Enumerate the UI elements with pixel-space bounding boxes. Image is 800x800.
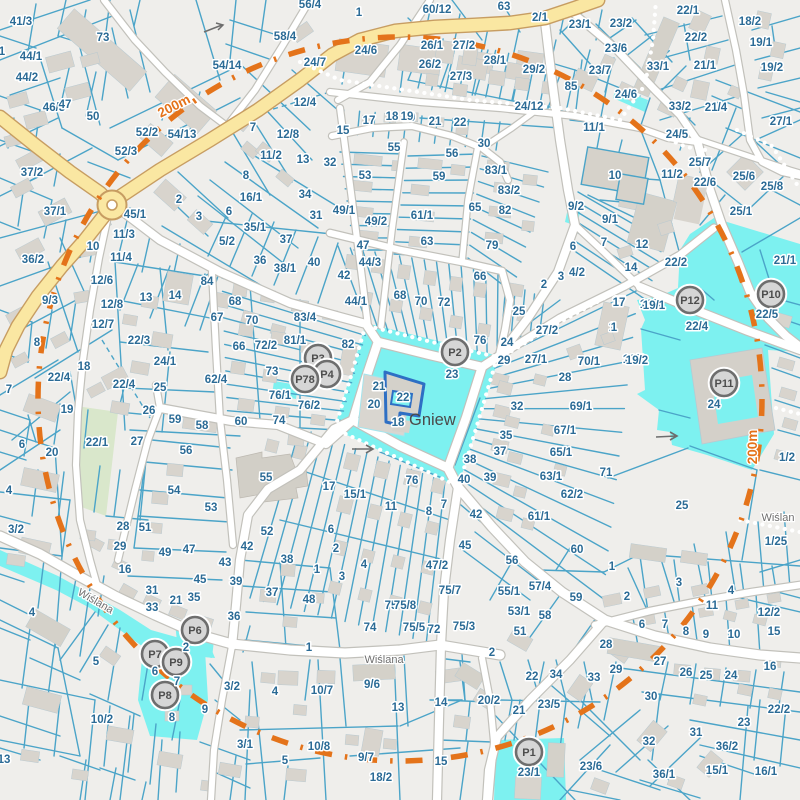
- svg-text:44/1: 44/1: [345, 296, 368, 308]
- svg-text:22/1: 22/1: [677, 5, 700, 17]
- svg-text:1: 1: [314, 564, 321, 576]
- svg-text:22: 22: [526, 671, 539, 683]
- svg-text:45: 45: [194, 574, 207, 586]
- svg-text:Wiślana: Wiślana: [364, 654, 404, 666]
- svg-text:24/6: 24/6: [355, 45, 377, 57]
- svg-text:22/4: 22/4: [113, 379, 136, 391]
- svg-text:75/8: 75/8: [394, 600, 417, 612]
- svg-text:36: 36: [254, 255, 267, 267]
- svg-text:17: 17: [323, 481, 336, 493]
- svg-text:14: 14: [625, 262, 638, 274]
- svg-text:8: 8: [34, 337, 41, 349]
- svg-text:58: 58: [539, 610, 552, 622]
- svg-text:15: 15: [768, 626, 781, 638]
- svg-text:32: 32: [511, 401, 524, 413]
- svg-text:32: 32: [324, 157, 337, 169]
- svg-text:22/2: 22/2: [768, 704, 790, 716]
- svg-text:49/1: 49/1: [333, 205, 356, 217]
- svg-text:3: 3: [676, 577, 682, 589]
- svg-text:16/1: 16/1: [240, 192, 263, 204]
- svg-text:4: 4: [6, 485, 13, 497]
- svg-text:24/5: 24/5: [666, 129, 689, 141]
- svg-text:7: 7: [662, 619, 668, 631]
- svg-text:3/2: 3/2: [8, 524, 24, 536]
- svg-text:52/2: 52/2: [136, 127, 158, 139]
- svg-text:23/7: 23/7: [589, 65, 611, 77]
- svg-text:66: 66: [233, 341, 246, 353]
- svg-text:27/3: 27/3: [450, 71, 472, 83]
- svg-text:15: 15: [435, 756, 448, 768]
- svg-text:24: 24: [501, 337, 514, 349]
- svg-text:56/4: 56/4: [299, 0, 322, 11]
- svg-text:44/1: 44/1: [20, 51, 43, 63]
- svg-text:38: 38: [281, 554, 294, 566]
- svg-text:45/1: 45/1: [124, 209, 147, 221]
- svg-text:58: 58: [196, 420, 209, 432]
- svg-text:29/2: 29/2: [523, 64, 545, 76]
- svg-text:19/1: 19/1: [643, 300, 666, 312]
- svg-text:54: 54: [168, 485, 181, 497]
- svg-text:P2: P2: [448, 347, 461, 359]
- svg-text:36/2: 36/2: [22, 254, 44, 266]
- svg-text:9/2: 9/2: [568, 201, 584, 213]
- svg-text:16: 16: [764, 661, 777, 673]
- svg-text:28/1: 28/1: [484, 55, 507, 67]
- svg-text:49: 49: [159, 547, 172, 559]
- svg-text:20/2: 20/2: [478, 695, 500, 707]
- svg-text:39: 39: [230, 576, 243, 588]
- svg-text:26/2: 26/2: [419, 59, 441, 71]
- svg-text:83/1: 83/1: [485, 165, 508, 177]
- svg-text:22/1: 22/1: [86, 437, 109, 449]
- svg-text:6: 6: [328, 524, 334, 536]
- svg-text:27/2: 27/2: [453, 40, 475, 52]
- svg-text:11: 11: [706, 600, 719, 612]
- svg-text:9/3: 9/3: [42, 295, 58, 307]
- svg-text:49/2: 49/2: [365, 216, 387, 228]
- svg-text:38: 38: [464, 454, 477, 466]
- svg-text:9/6: 9/6: [364, 679, 380, 691]
- svg-text:15/1: 15/1: [344, 489, 367, 501]
- svg-text:4: 4: [728, 585, 735, 597]
- svg-text:P11: P11: [715, 378, 734, 390]
- svg-text:82: 82: [499, 205, 512, 217]
- svg-text:21/1: 21/1: [694, 60, 717, 72]
- svg-text:27/1: 27/1: [525, 354, 548, 366]
- svg-text:44/2: 44/2: [16, 72, 38, 84]
- svg-text:31: 31: [690, 727, 703, 739]
- svg-text:11/2: 11/2: [661, 169, 683, 181]
- svg-text:15/1: 15/1: [706, 765, 729, 777]
- svg-text:11/1: 11/1: [583, 122, 605, 134]
- svg-text:84: 84: [201, 276, 214, 288]
- svg-text:11/4: 11/4: [110, 252, 132, 264]
- svg-text:83/2: 83/2: [498, 185, 520, 197]
- svg-text:45: 45: [459, 540, 472, 552]
- svg-text:10/8: 10/8: [308, 741, 331, 753]
- svg-text:2/1: 2/1: [532, 12, 549, 24]
- svg-text:25/1: 25/1: [730, 206, 753, 218]
- svg-text:12: 12: [636, 239, 649, 251]
- svg-text:37/2: 37/2: [21, 167, 43, 179]
- svg-text:60/12: 60/12: [423, 4, 452, 16]
- svg-text:59: 59: [570, 592, 583, 604]
- svg-text:1: 1: [0, 46, 6, 58]
- svg-text:4/2: 4/2: [569, 267, 585, 279]
- svg-text:42: 42: [470, 509, 483, 521]
- svg-text:13: 13: [140, 292, 153, 304]
- svg-text:2: 2: [624, 591, 630, 603]
- svg-text:18: 18: [392, 417, 405, 429]
- svg-text:18: 18: [386, 111, 399, 123]
- svg-text:12/8: 12/8: [277, 129, 300, 141]
- svg-text:8: 8: [243, 170, 250, 182]
- svg-text:11/2: 11/2: [260, 150, 282, 162]
- svg-text:14: 14: [435, 697, 448, 709]
- svg-text:32: 32: [643, 736, 656, 748]
- svg-text:82: 82: [342, 339, 355, 351]
- svg-text:10: 10: [609, 170, 622, 182]
- svg-text:5: 5: [93, 656, 100, 668]
- svg-text:9/7: 9/7: [358, 752, 374, 764]
- svg-text:22/3: 22/3: [128, 335, 150, 347]
- svg-text:25/8: 25/8: [761, 181, 784, 193]
- svg-text:2: 2: [541, 279, 547, 291]
- svg-text:6: 6: [570, 241, 576, 253]
- svg-text:27: 27: [131, 436, 144, 448]
- svg-text:9: 9: [703, 629, 709, 641]
- svg-text:23: 23: [738, 717, 751, 729]
- svg-text:P7: P7: [148, 649, 161, 661]
- svg-text:36/1: 36/1: [653, 769, 676, 781]
- svg-text:30: 30: [645, 691, 658, 703]
- svg-text:85: 85: [565, 81, 578, 93]
- svg-text:26: 26: [680, 667, 693, 679]
- svg-text:11/3: 11/3: [113, 229, 135, 241]
- svg-text:33/1: 33/1: [647, 61, 670, 73]
- svg-text:8: 8: [426, 506, 433, 518]
- svg-text:68: 68: [229, 296, 242, 308]
- svg-text:69/1: 69/1: [570, 401, 593, 413]
- svg-text:10: 10: [87, 241, 100, 253]
- svg-text:23: 23: [446, 369, 459, 381]
- svg-text:28: 28: [600, 639, 613, 651]
- svg-text:17: 17: [613, 297, 626, 309]
- svg-text:10: 10: [728, 629, 741, 641]
- svg-text:52: 52: [261, 526, 274, 538]
- svg-text:66: 66: [474, 271, 487, 283]
- svg-text:1: 1: [356, 7, 363, 19]
- svg-text:51: 51: [139, 522, 152, 534]
- svg-text:36: 36: [228, 611, 241, 623]
- svg-text:29: 29: [498, 355, 511, 367]
- svg-text:23/1: 23/1: [569, 19, 592, 31]
- svg-text:23/1: 23/1: [518, 767, 541, 779]
- svg-text:27/2: 27/2: [536, 325, 558, 337]
- svg-text:26: 26: [143, 405, 156, 417]
- svg-text:20: 20: [368, 399, 381, 411]
- svg-text:2: 2: [489, 647, 495, 659]
- svg-text:61/1: 61/1: [411, 210, 434, 222]
- svg-text:P6: P6: [188, 625, 201, 637]
- svg-text:1: 1: [306, 642, 313, 654]
- svg-text:20: 20: [46, 447, 59, 459]
- svg-text:24: 24: [708, 399, 721, 411]
- svg-text:4: 4: [361, 559, 368, 571]
- svg-text:34: 34: [550, 669, 563, 681]
- svg-text:2: 2: [183, 642, 189, 654]
- svg-text:43: 43: [219, 557, 232, 569]
- svg-text:1: 1: [609, 561, 616, 573]
- svg-text:58/4: 58/4: [274, 31, 297, 43]
- svg-text:24: 24: [725, 670, 738, 682]
- svg-text:70: 70: [246, 315, 259, 327]
- svg-text:3/2: 3/2: [224, 681, 240, 693]
- svg-text:76/2: 76/2: [298, 400, 320, 412]
- svg-text:7: 7: [601, 237, 607, 249]
- svg-text:13: 13: [0, 754, 10, 766]
- svg-text:71: 71: [600, 467, 613, 479]
- svg-text:61/1: 61/1: [528, 511, 551, 523]
- svg-text:51: 51: [514, 626, 527, 638]
- svg-text:7: 7: [6, 384, 12, 396]
- svg-text:P4: P4: [320, 369, 334, 381]
- svg-text:25/7: 25/7: [689, 157, 711, 169]
- svg-text:37: 37: [266, 587, 279, 599]
- svg-text:73: 73: [97, 32, 110, 44]
- svg-text:23/2: 23/2: [610, 18, 632, 30]
- svg-text:24/6: 24/6: [615, 89, 637, 101]
- svg-text:83/4: 83/4: [294, 312, 317, 324]
- svg-text:13: 13: [297, 154, 310, 166]
- svg-text:21: 21: [170, 595, 183, 607]
- svg-text:4: 4: [272, 686, 279, 698]
- svg-text:21: 21: [429, 116, 442, 128]
- svg-text:P8: P8: [158, 690, 171, 702]
- svg-text:56: 56: [446, 148, 459, 160]
- svg-text:22/6: 22/6: [694, 177, 716, 189]
- svg-text:12/8: 12/8: [101, 299, 124, 311]
- svg-text:8: 8: [683, 626, 690, 638]
- svg-text:48: 48: [303, 594, 316, 606]
- svg-text:1/25: 1/25: [765, 536, 788, 548]
- svg-text:22/2: 22/2: [685, 32, 707, 44]
- svg-text:17: 17: [363, 115, 376, 127]
- svg-text:33: 33: [146, 602, 159, 614]
- svg-text:21: 21: [513, 705, 526, 717]
- svg-text:74: 74: [364, 622, 377, 634]
- svg-text:29: 29: [114, 541, 127, 553]
- svg-text:6: 6: [639, 619, 645, 631]
- svg-text:22/2: 22/2: [665, 257, 687, 269]
- svg-text:31: 31: [146, 585, 159, 597]
- svg-text:62/4: 62/4: [205, 374, 228, 386]
- svg-text:67: 67: [211, 312, 224, 324]
- svg-text:27: 27: [654, 656, 667, 668]
- svg-text:55: 55: [388, 142, 401, 154]
- svg-text:52/3: 52/3: [115, 146, 137, 158]
- svg-text:24/1: 24/1: [154, 356, 177, 368]
- svg-text:25: 25: [513, 306, 526, 318]
- svg-text:50: 50: [87, 111, 100, 123]
- svg-text:63: 63: [498, 1, 511, 13]
- svg-text:21/1: 21/1: [774, 255, 797, 267]
- svg-text:Gniew: Gniew: [409, 411, 456, 429]
- svg-text:22: 22: [397, 392, 410, 404]
- svg-text:5: 5: [282, 755, 289, 767]
- svg-text:24/7: 24/7: [304, 57, 326, 69]
- svg-text:4: 4: [29, 607, 36, 619]
- svg-text:37: 37: [280, 234, 293, 246]
- svg-text:2: 2: [333, 543, 339, 555]
- svg-text:22: 22: [454, 117, 467, 129]
- svg-text:19: 19: [401, 111, 414, 123]
- svg-text:19/2: 19/2: [761, 62, 783, 74]
- svg-text:42: 42: [241, 541, 254, 553]
- svg-text:16: 16: [119, 564, 132, 576]
- svg-text:68: 68: [394, 290, 407, 302]
- svg-text:19/1: 19/1: [750, 37, 773, 49]
- svg-text:12/7: 12/7: [92, 319, 114, 331]
- svg-text:35: 35: [500, 430, 513, 442]
- svg-text:54/13: 54/13: [168, 129, 197, 141]
- svg-text:47: 47: [357, 240, 370, 252]
- svg-text:76: 76: [474, 335, 487, 347]
- svg-text:P9: P9: [169, 657, 182, 669]
- svg-text:19: 19: [61, 404, 74, 416]
- svg-text:18/2: 18/2: [739, 16, 761, 28]
- svg-text:56: 56: [180, 445, 193, 457]
- svg-text:36/2: 36/2: [716, 741, 738, 753]
- svg-text:38/1: 38/1: [274, 263, 297, 275]
- svg-text:55: 55: [260, 472, 273, 484]
- svg-text:63: 63: [421, 236, 434, 248]
- svg-text:35/1: 35/1: [244, 222, 267, 234]
- svg-text:7: 7: [441, 499, 447, 511]
- svg-text:59: 59: [433, 171, 446, 183]
- svg-text:16/1: 16/1: [755, 766, 778, 778]
- svg-text:5/2: 5/2: [219, 236, 235, 248]
- svg-text:12/6: 12/6: [91, 275, 113, 287]
- svg-text:6: 6: [226, 206, 232, 218]
- svg-text:73: 73: [266, 366, 279, 378]
- svg-text:22/5: 22/5: [756, 309, 779, 321]
- svg-text:75/5: 75/5: [403, 622, 426, 634]
- svg-text:6: 6: [152, 666, 158, 678]
- svg-text:8: 8: [169, 712, 176, 724]
- svg-text:10/7: 10/7: [311, 685, 333, 697]
- svg-text:3: 3: [339, 571, 345, 583]
- svg-text:25/6: 25/6: [733, 171, 755, 183]
- svg-text:74: 74: [273, 415, 286, 427]
- svg-text:75/7: 75/7: [439, 585, 461, 597]
- svg-text:63/1: 63/1: [540, 471, 563, 483]
- svg-text:P78: P78: [295, 374, 315, 386]
- svg-text:13: 13: [392, 702, 405, 714]
- svg-text:3/1: 3/1: [237, 739, 254, 751]
- svg-text:23/6: 23/6: [580, 761, 602, 773]
- svg-text:40: 40: [458, 474, 471, 486]
- svg-text:37: 37: [494, 446, 507, 458]
- svg-text:42: 42: [338, 270, 351, 282]
- svg-text:35: 35: [188, 592, 201, 604]
- svg-text:26/1: 26/1: [421, 40, 444, 52]
- svg-text:39: 39: [484, 472, 497, 484]
- svg-text:54/14: 54/14: [213, 60, 242, 72]
- svg-text:47: 47: [183, 544, 196, 556]
- svg-text:60: 60: [571, 544, 584, 556]
- svg-text:60: 60: [235, 416, 248, 428]
- svg-text:12/2: 12/2: [758, 607, 780, 619]
- svg-text:62/2: 62/2: [561, 489, 583, 501]
- svg-text:47: 47: [59, 99, 72, 111]
- svg-text:33/2: 33/2: [669, 101, 691, 113]
- svg-text:33: 33: [588, 672, 601, 684]
- svg-text:70: 70: [415, 296, 428, 308]
- svg-text:200m: 200m: [745, 430, 760, 465]
- svg-text:72: 72: [438, 297, 451, 309]
- svg-text:24/12: 24/12: [515, 101, 544, 113]
- svg-text:9/1: 9/1: [602, 214, 619, 226]
- svg-text:79: 79: [486, 240, 499, 252]
- svg-text:11: 11: [385, 501, 398, 513]
- svg-text:44/3: 44/3: [359, 257, 381, 269]
- svg-text:40: 40: [308, 257, 321, 269]
- svg-text:75/3: 75/3: [453, 621, 475, 633]
- svg-text:9: 9: [202, 704, 208, 716]
- svg-text:47/2: 47/2: [426, 560, 448, 572]
- svg-text:57/4: 57/4: [529, 581, 552, 593]
- svg-text:25: 25: [154, 382, 167, 394]
- svg-text:3: 3: [196, 211, 202, 223]
- svg-text:72/2: 72/2: [255, 340, 277, 352]
- svg-text:19/2: 19/2: [626, 355, 648, 367]
- svg-text:25: 25: [700, 670, 713, 682]
- svg-text:21: 21: [373, 381, 386, 393]
- svg-text:P1: P1: [522, 747, 535, 759]
- svg-text:76/1: 76/1: [269, 390, 292, 402]
- svg-text:15: 15: [337, 125, 350, 137]
- svg-text:53: 53: [205, 502, 218, 514]
- svg-text:23/5: 23/5: [538, 699, 561, 711]
- svg-text:28: 28: [559, 372, 572, 384]
- svg-text:29: 29: [610, 664, 623, 676]
- svg-text:31: 31: [310, 210, 323, 222]
- svg-text:22/4: 22/4: [48, 372, 71, 384]
- svg-text:Wiślan: Wiślan: [761, 512, 794, 524]
- svg-text:2: 2: [176, 194, 182, 206]
- svg-text:7: 7: [250, 122, 256, 134]
- svg-text:25: 25: [676, 500, 689, 512]
- svg-text:7: 7: [174, 676, 180, 688]
- svg-text:70/1: 70/1: [578, 356, 601, 368]
- svg-text:21/4: 21/4: [705, 102, 728, 114]
- svg-text:18: 18: [78, 361, 91, 373]
- svg-text:53/1: 53/1: [508, 606, 531, 618]
- svg-text:30: 30: [478, 138, 491, 150]
- svg-text:6: 6: [19, 439, 25, 451]
- svg-text:34: 34: [299, 189, 312, 201]
- svg-text:55/1: 55/1: [498, 586, 521, 598]
- svg-text:72: 72: [428, 624, 441, 636]
- svg-text:65: 65: [469, 202, 482, 214]
- svg-text:65/1: 65/1: [550, 447, 573, 459]
- svg-text:10/2: 10/2: [91, 714, 113, 726]
- svg-text:18/2: 18/2: [370, 772, 392, 784]
- svg-text:14: 14: [169, 290, 182, 302]
- svg-text:81/1: 81/1: [284, 335, 307, 347]
- svg-text:1: 1: [611, 322, 618, 334]
